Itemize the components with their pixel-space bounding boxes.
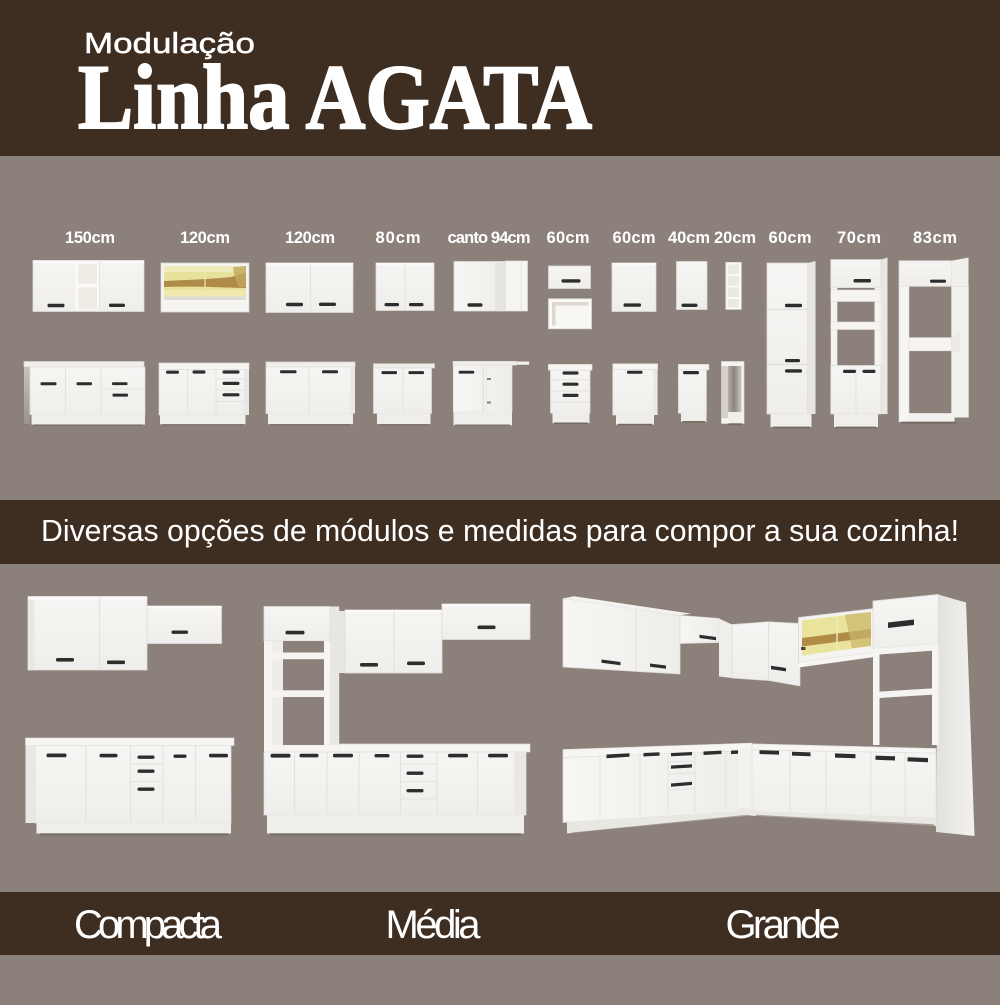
svg-text:60cm: 60cm: [769, 229, 812, 247]
svg-text:83cm: 83cm: [913, 229, 957, 247]
svg-text:Média: Média: [386, 903, 482, 947]
svg-text:Linha AGATA: Linha AGATA: [78, 46, 592, 148]
svg-text:Diversas opções de módulos e m: Diversas opções de módulos e medidas par…: [41, 513, 959, 548]
svg-text:20cm: 20cm: [714, 229, 756, 247]
svg-text:Compacta: Compacta: [74, 903, 223, 947]
svg-text:60cm: 60cm: [613, 229, 656, 247]
svg-text:Grande: Grande: [726, 903, 841, 947]
svg-text:120cm: 120cm: [180, 229, 230, 247]
svg-text:80cm: 80cm: [376, 229, 421, 247]
svg-text:120cm: 120cm: [285, 229, 335, 247]
svg-text:60cm: 60cm: [547, 229, 590, 247]
svg-text:70cm: 70cm: [837, 229, 881, 247]
svg-text:150cm: 150cm: [65, 229, 115, 247]
svg-text:40cm: 40cm: [668, 229, 710, 247]
svg-text:canto 94cm: canto 94cm: [448, 229, 531, 247]
